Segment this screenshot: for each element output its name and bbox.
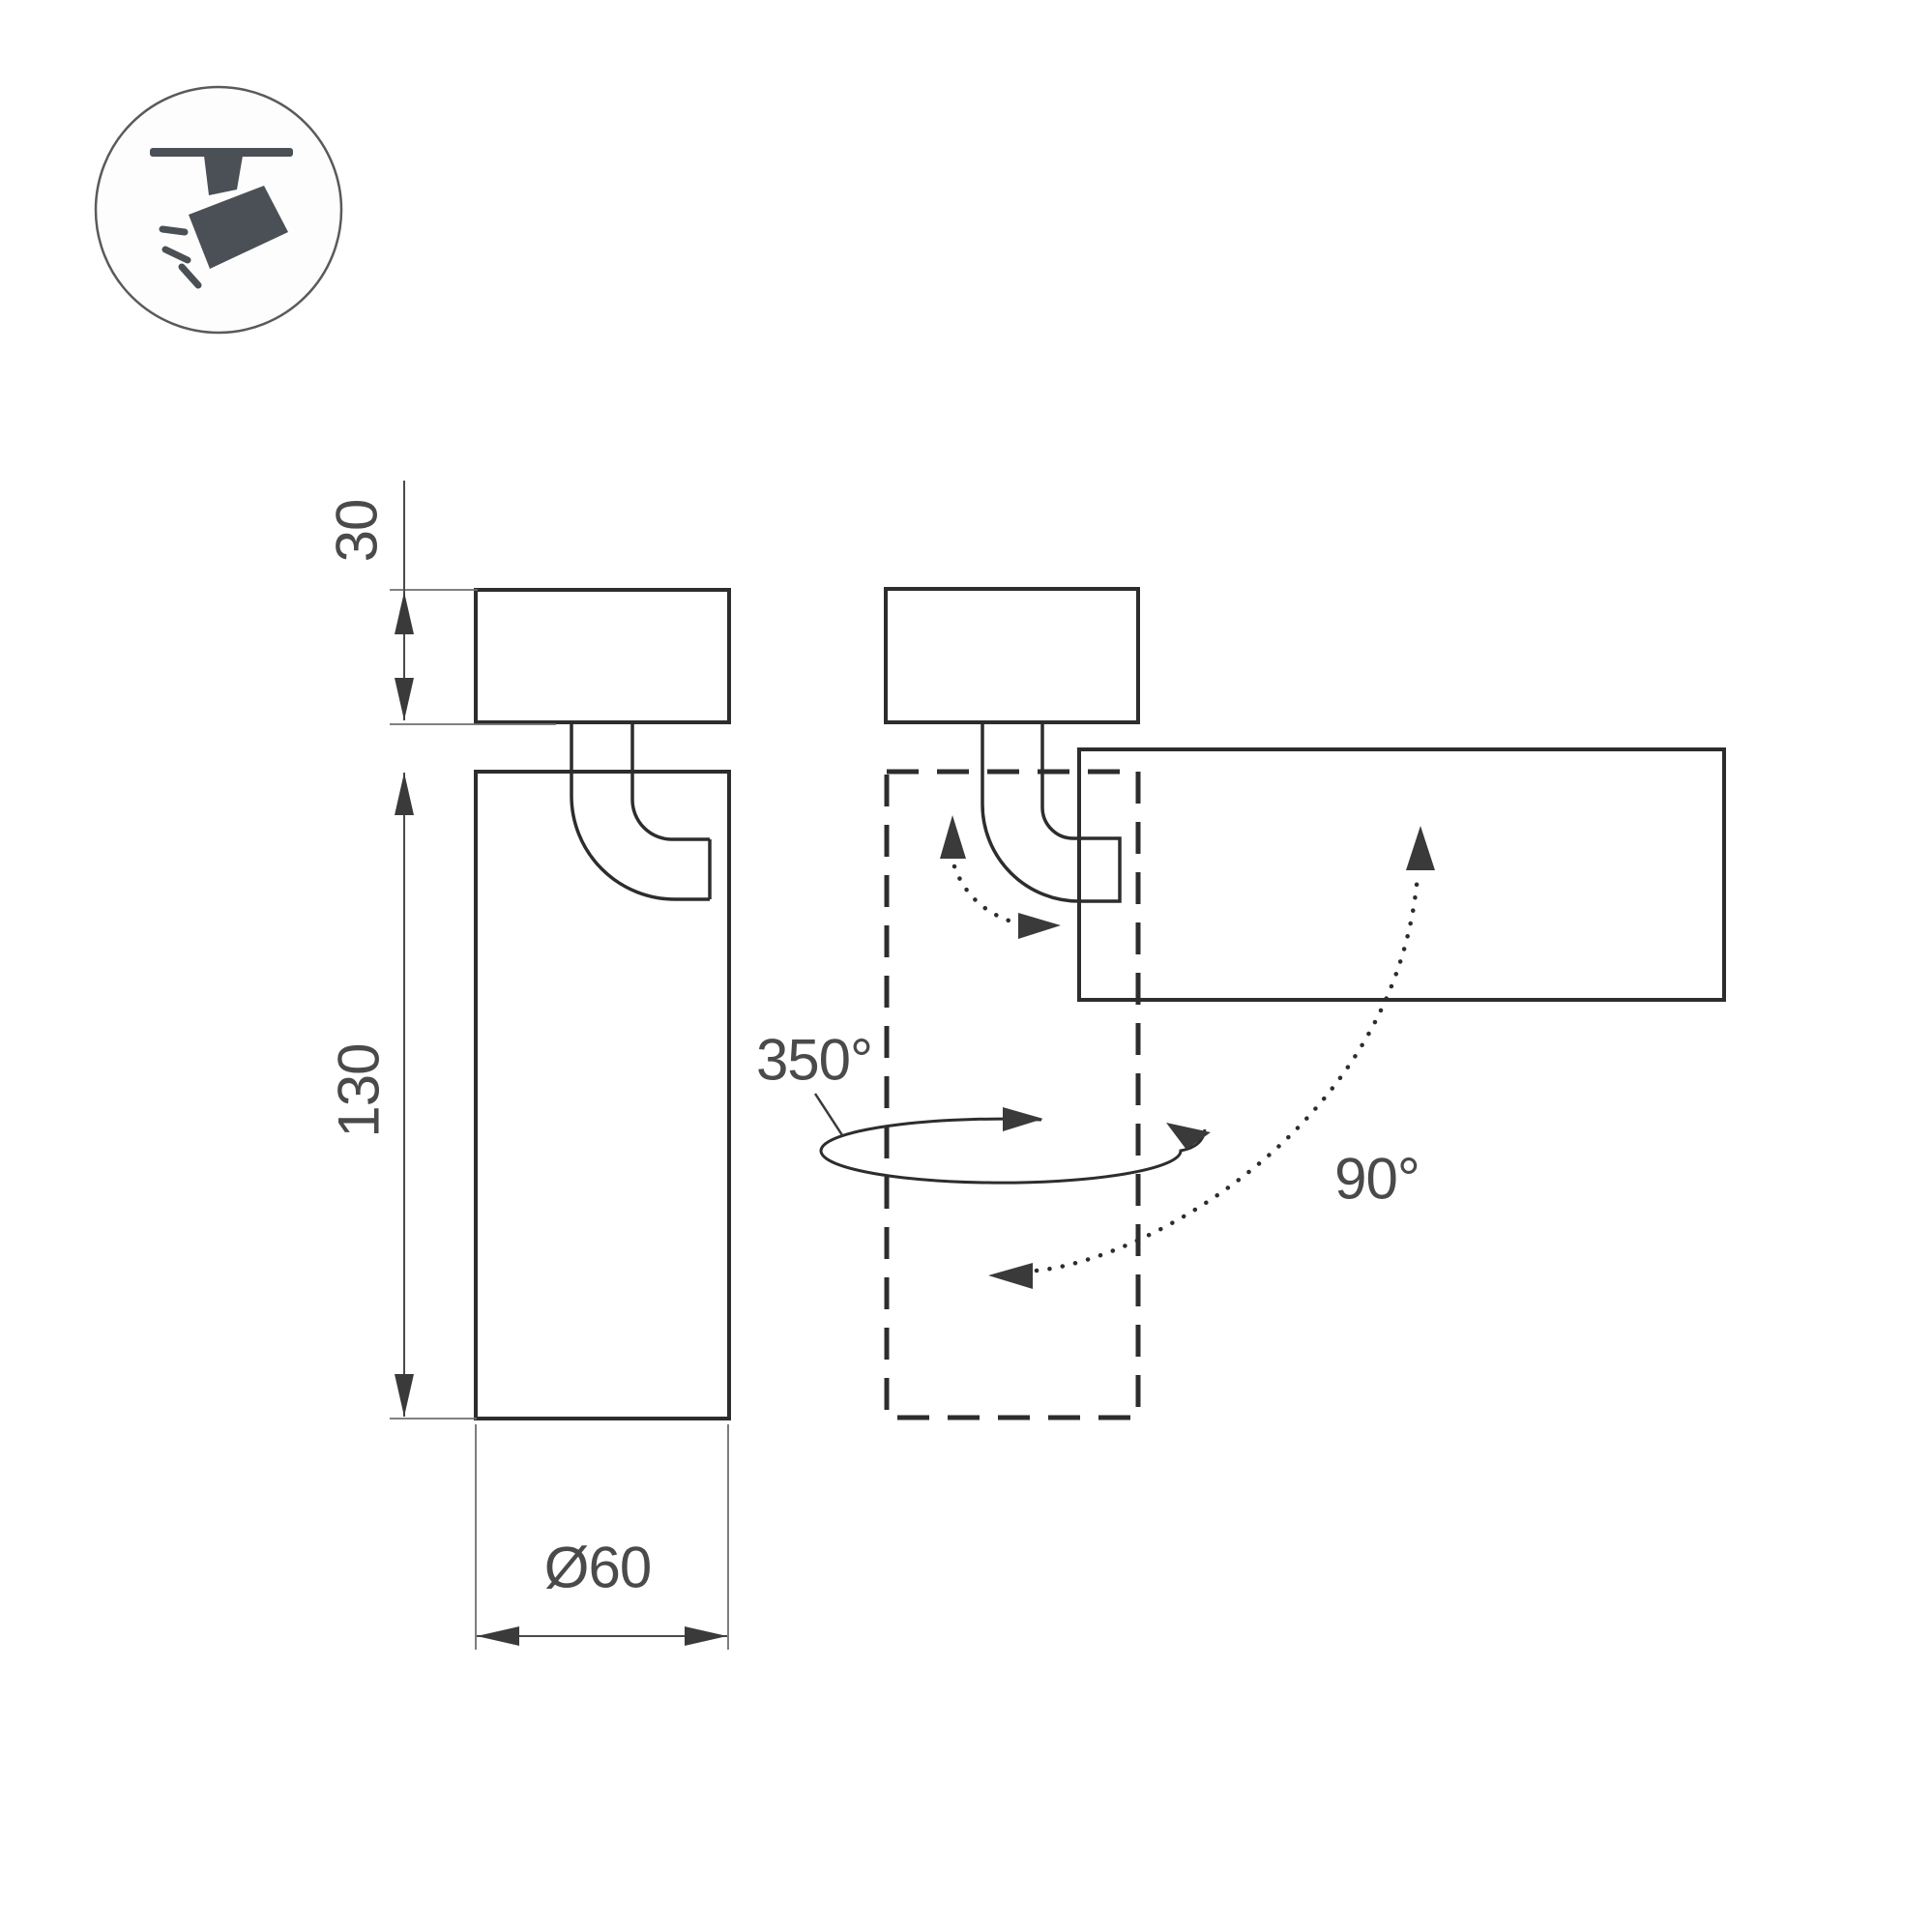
pan-angle-label: 350°	[756, 1028, 872, 1093]
ceiling-bar	[150, 148, 293, 157]
mount-stem	[204, 156, 243, 195]
dimension-label-130: 130	[327, 1043, 392, 1137]
dimension-label-30: 30	[325, 500, 390, 563]
light-ray	[162, 229, 185, 232]
dimension-label-diameter: Ø60	[544, 1536, 651, 1600]
technical-drawing: 30 130 Ø60 3	[0, 0, 1932, 1932]
mounting-type-badge	[96, 87, 341, 333]
tilt-angle-label: 90°	[1334, 1147, 1420, 1212]
